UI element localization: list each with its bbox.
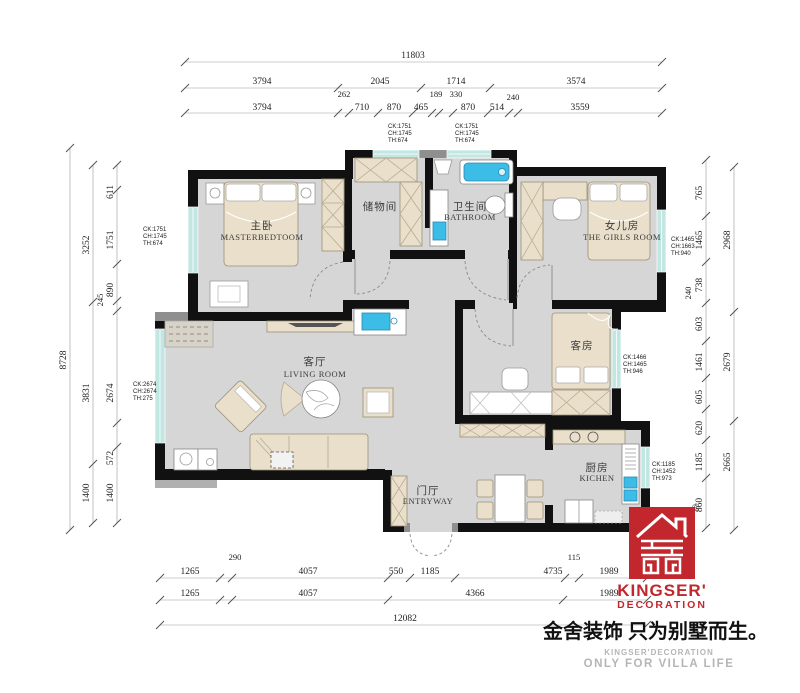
- svg-text:245: 245: [95, 294, 105, 307]
- svg-text:TH:973: TH:973: [652, 476, 672, 482]
- svg-text:330: 330: [450, 89, 463, 99]
- svg-text:2045: 2045: [371, 77, 390, 87]
- room-label-kitchen-en: KICHEN: [579, 473, 614, 483]
- dim-total-height: 8728: [59, 350, 69, 369]
- svg-text:2665: 2665: [723, 452, 733, 471]
- svg-text:4735: 4735: [544, 567, 563, 577]
- svg-text:1265: 1265: [181, 567, 200, 577]
- svg-text:CK:1751: CK:1751: [455, 124, 479, 130]
- svg-text:262: 262: [338, 89, 351, 99]
- svg-text:1400: 1400: [82, 483, 92, 502]
- svg-text:1751: 1751: [106, 230, 116, 249]
- svg-text:2679: 2679: [723, 352, 733, 371]
- svg-text:1465: 1465: [695, 230, 705, 249]
- svg-text:514: 514: [490, 103, 505, 113]
- svg-text:CH:1465: CH:1465: [623, 362, 647, 368]
- svg-text:TH:940: TH:940: [671, 251, 691, 257]
- brand-logo: KINGSER' DECORATION: [622, 507, 702, 611]
- svg-text:TH:674: TH:674: [143, 241, 163, 247]
- svg-text:3574: 3574: [567, 77, 586, 87]
- dimension-labels-bottom: 1265 290 4057 550 1185 4735 115 1989 126…: [181, 552, 619, 624]
- svg-text:290: 290: [229, 552, 242, 562]
- svg-text:189: 189: [430, 89, 443, 99]
- room-label-master-zh: 主卧: [251, 219, 274, 232]
- room-label-girls-zh: 女儿房: [605, 219, 640, 232]
- svg-text:CK:1466: CK:1466: [623, 355, 647, 361]
- svg-text:1185: 1185: [421, 567, 440, 577]
- svg-text:TH:674: TH:674: [388, 138, 408, 144]
- room-label-master-en: MASTERBEDTOOM: [221, 232, 304, 242]
- svg-text:738: 738: [695, 278, 705, 293]
- dim-total-bottom: 12082: [393, 614, 417, 624]
- window-tag-girls: CK:1465 CH:1663 TH:940: [671, 237, 695, 257]
- room-label-living-en: LIVING ROOM: [284, 369, 346, 379]
- kingser-house-icon: [629, 507, 695, 579]
- room-label-living-zh: 客厅: [304, 355, 327, 368]
- brand-slogan-chinese: 金舍装饰 只为别墅而生。: [543, 615, 783, 644]
- svg-text:1989: 1989: [600, 567, 619, 577]
- svg-text:890: 890: [106, 283, 116, 298]
- svg-text:CK:1465: CK:1465: [671, 237, 695, 243]
- room-label-storage-zh: 储物间: [363, 200, 398, 213]
- svg-text:3831: 3831: [82, 383, 92, 402]
- svg-text:CH:1745: CH:1745: [143, 234, 167, 240]
- svg-text:CK:1751: CK:1751: [388, 124, 412, 130]
- svg-text:CK:2674: CK:2674: [133, 382, 157, 388]
- svg-text:240: 240: [683, 287, 693, 300]
- svg-text:603: 603: [695, 317, 705, 332]
- svg-text:765: 765: [695, 186, 705, 201]
- svg-text:3794: 3794: [253, 103, 272, 113]
- room-label-bathroom-en: BATHROOM: [444, 212, 496, 222]
- dim-total-width: 11803: [401, 51, 425, 61]
- svg-text:CH:1745: CH:1745: [388, 131, 412, 137]
- svg-text:CK:1751: CK:1751: [143, 227, 167, 233]
- svg-text:870: 870: [461, 103, 476, 113]
- svg-text:1400: 1400: [106, 483, 116, 502]
- svg-text:4366: 4366: [466, 589, 485, 599]
- svg-text:115: 115: [568, 552, 580, 562]
- svg-text:1185: 1185: [695, 452, 705, 471]
- svg-text:TH:674: TH:674: [455, 138, 475, 144]
- dimension-labels-right: 765 1465 738 240 603 1461 605 620 1185 8…: [683, 186, 733, 513]
- svg-text:611: 611: [106, 185, 116, 199]
- window-tag-guest: CK:1466 CH:1465 TH:946: [623, 355, 647, 375]
- svg-text:3559: 3559: [571, 103, 590, 113]
- room-label-entry-en: ENTRYWAY: [403, 496, 453, 506]
- brand-subtitle: DECORATION: [617, 600, 707, 612]
- svg-text:CH:2674: CH:2674: [133, 389, 157, 395]
- svg-text:870: 870: [387, 103, 402, 113]
- svg-text:CH:1452: CH:1452: [652, 469, 676, 475]
- svg-text:2968: 2968: [723, 230, 733, 249]
- svg-text:465: 465: [414, 103, 429, 113]
- dimension-labels-left: 8728 3252 3831 1400 611 1751 890 245 267…: [59, 185, 116, 503]
- svg-text:710: 710: [355, 103, 370, 113]
- svg-text:TH:275: TH:275: [133, 396, 153, 402]
- window-tag-master: CK:1751 CH:1745 TH:674: [143, 227, 167, 247]
- floor-plan-canvas: 主卧 MASTERBEDTOOM 储物间 卫生间 BATHROOM 女儿房 TH…: [0, 0, 800, 693]
- svg-text:1265: 1265: [181, 589, 200, 599]
- window-tag-top2: CK:1751 CH:1745 TH:674: [455, 124, 479, 144]
- brand-name: KINGSER': [617, 582, 707, 600]
- svg-text:550: 550: [389, 567, 404, 577]
- svg-text:4057: 4057: [299, 589, 318, 599]
- svg-text:620: 620: [695, 421, 705, 436]
- svg-text:4057: 4057: [299, 567, 318, 577]
- svg-text:CH:1745: CH:1745: [455, 131, 479, 137]
- svg-text:TH:946: TH:946: [623, 369, 643, 375]
- svg-text:605: 605: [695, 390, 705, 405]
- room-label-girls-en: THE GIRLS ROOM: [583, 232, 661, 242]
- svg-text:1989: 1989: [600, 589, 619, 599]
- brand-slogan-english-2: ONLY FOR VILLA LIFE: [545, 658, 773, 670]
- dimension-labels-top: 11803 3794 2045 1714 3574 262 189 330 24…: [253, 51, 590, 113]
- svg-text:1714: 1714: [447, 77, 466, 87]
- svg-text:CH:1663: CH:1663: [671, 244, 695, 250]
- svg-text:3252: 3252: [82, 235, 92, 254]
- svg-text:240: 240: [507, 92, 520, 102]
- svg-text:572: 572: [106, 451, 116, 466]
- room-label-guest-zh: 客房: [571, 339, 594, 352]
- window-tag-top1: CK:1751 CH:1745 TH:674: [388, 124, 412, 144]
- svg-text:1461: 1461: [695, 352, 705, 371]
- svg-text:3794: 3794: [253, 77, 272, 87]
- window-tag-living: CK:2674 CH:2674 TH:275: [133, 382, 157, 402]
- svg-text:2674: 2674: [106, 383, 116, 402]
- window-tag-kitchen: CK:1185 CH:1452 TH:973: [652, 462, 676, 482]
- svg-text:CK:1185: CK:1185: [652, 462, 676, 468]
- brand-slogan-english-1: KINGSER'DECORATION: [545, 648, 773, 657]
